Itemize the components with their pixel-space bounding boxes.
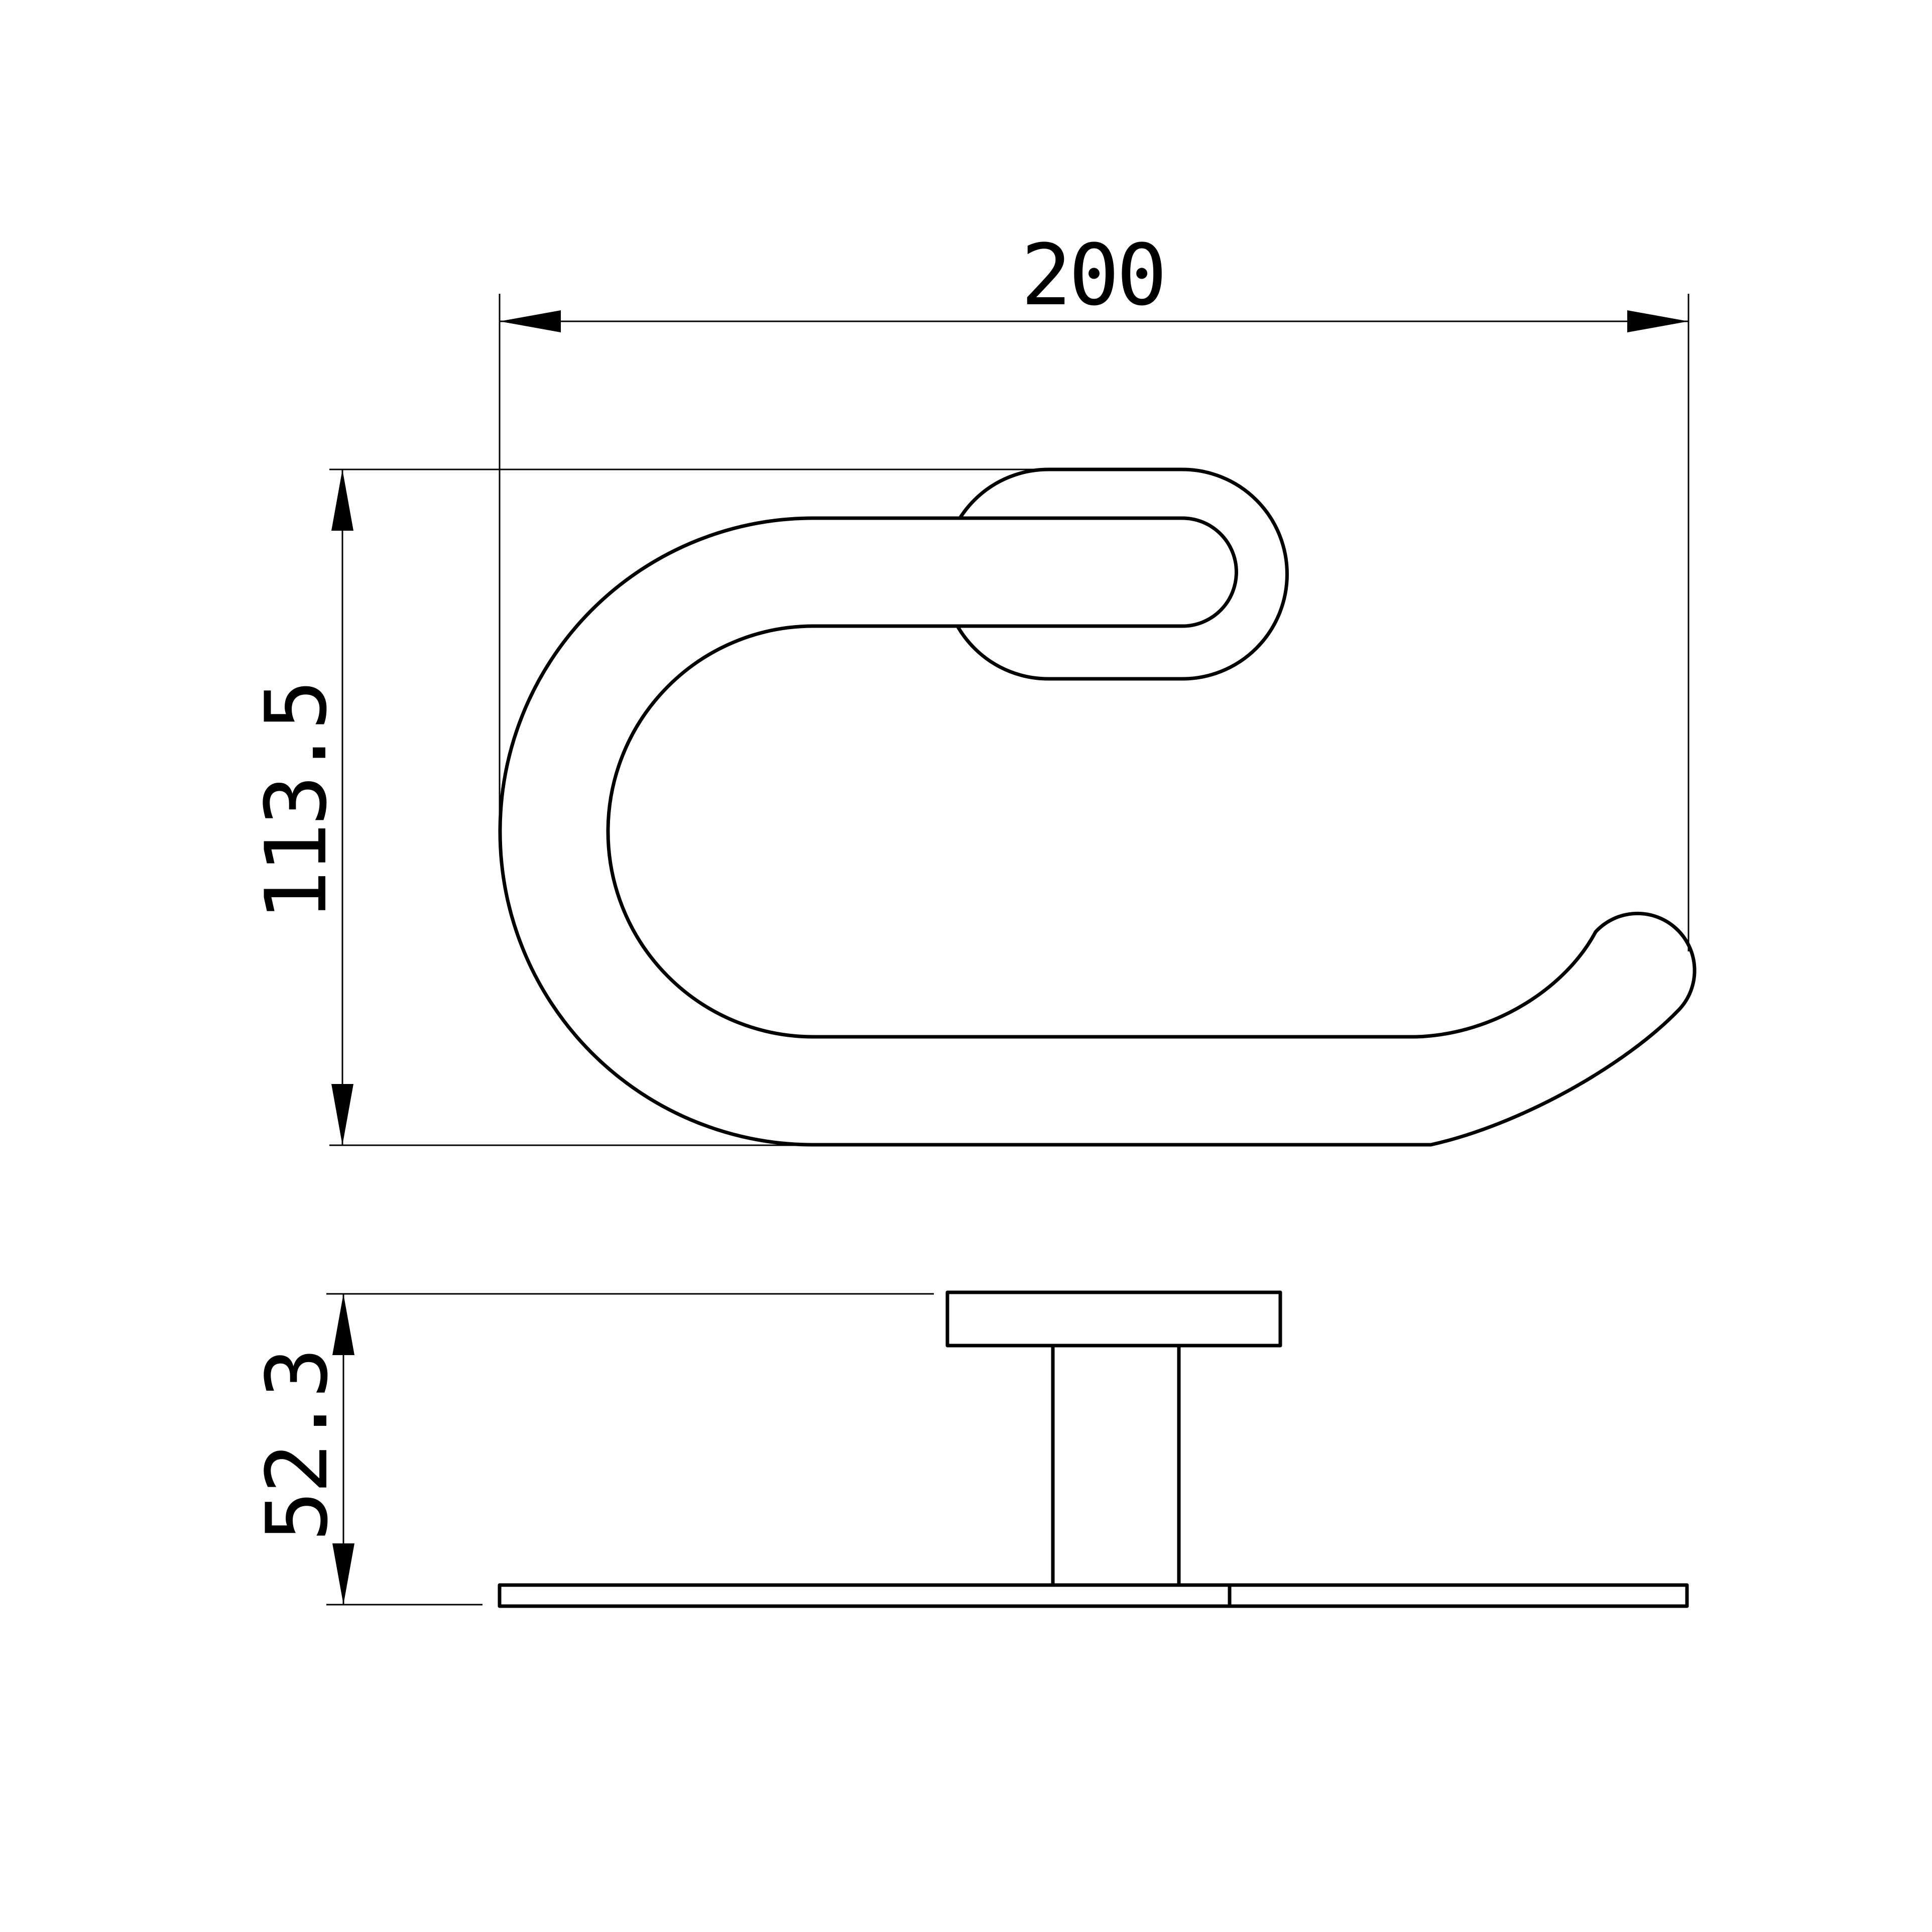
ring-band-outline [500,518,1695,1145]
technical-drawing-sheet: 200 113.5 52.3 [0,0,1932,1932]
dimension-value-depth: 52.3 [248,1351,346,1542]
dimension-value-height: 113.5 [247,682,345,921]
arrowhead-right-icon [1627,310,1688,332]
arrowhead-left-icon [500,310,561,332]
arrowhead-up-icon [331,469,353,531]
towel-ring-technical-drawing: 200 113.5 52.3 [0,0,1932,1932]
dimension-projection-depth: 52.3 [248,1294,934,1605]
mount-plate-profile [947,1292,1280,1346]
arrowhead-up-icon [332,1294,354,1355]
dimension-value-width: 200 [1021,226,1164,324]
arrowhead-down-icon [331,1084,353,1145]
ring-band-profile [500,1585,1687,1606]
front-view [500,469,1695,1145]
arrowhead-down-icon [332,1543,354,1605]
mount-post-profile [1053,1346,1179,1585]
bottom-view [500,1292,1687,1606]
